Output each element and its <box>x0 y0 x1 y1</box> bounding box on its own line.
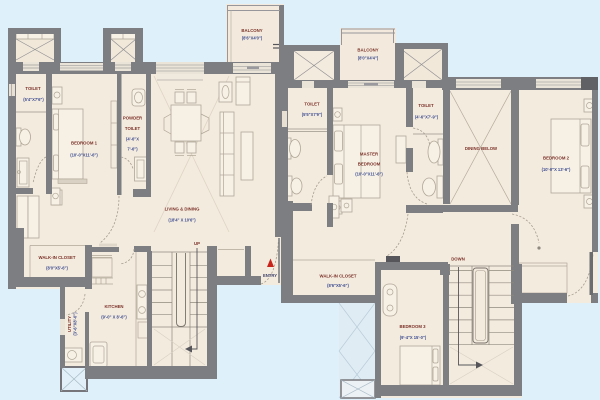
svg-text:BALCONY: BALCONY <box>241 28 262 33</box>
svg-text:TOILET: TOILET <box>25 86 41 91</box>
svg-text:POWDER: POWDER <box>123 116 143 121</box>
svg-text:BEDROOM 1: BEDROOM 1 <box>71 141 98 146</box>
svg-text:MASTER: MASTER <box>360 152 379 157</box>
svg-text:(8'0"X5'-6"): (8'0"X5'-6") <box>46 266 68 271</box>
svg-text:(8'0"X4'4"): (8'0"X4'4") <box>358 56 379 61</box>
svg-text:(8'6"X4'0"): (8'6"X4'0") <box>242 36 263 41</box>
svg-text:(9'-0" X 8'-6"): (9'-0" X 8'-6") <box>101 315 127 320</box>
svg-text:BALCONY: BALCONY <box>357 48 378 53</box>
svg-text:TOILET: TOILET <box>418 103 434 108</box>
svg-text:(5'5"X7'9"): (5'5"X7'9") <box>302 112 323 117</box>
svg-text:ENTRY: ENTRY <box>263 273 277 278</box>
svg-text:BEDROOM: BEDROOM <box>358 162 381 167</box>
svg-text:UP: UP <box>194 241 200 246</box>
svg-text:(8'6"X5'-6"): (8'6"X5'-6") <box>327 283 349 288</box>
svg-text:(4'-6"X: (4'-6"X <box>126 137 139 142</box>
svg-text:(10'-0"X 13'-6"): (10'-0"X 13'-6") <box>542 167 571 172</box>
svg-text:(5'4"X7'6"): (5'4"X7'6") <box>23 97 44 102</box>
svg-text:BEDROOM 2: BEDROOM 2 <box>543 156 570 161</box>
svg-text:(10'-0"X11'-6"): (10'-0"X11'-6") <box>70 153 98 158</box>
svg-text:7'-6"): 7'-6") <box>127 147 138 152</box>
svg-text:WALK-IN CLOSET: WALK-IN CLOSET <box>320 274 357 279</box>
svg-text:(9'-4"X 15'-0"): (9'-4"X 15'-0") <box>400 335 427 340</box>
svg-text:TOILET: TOILET <box>125 126 141 131</box>
svg-text:(4'-6"X7'-9"): (4'-6"X7'-9") <box>415 115 439 120</box>
svg-text:(10'-0"X11'-6"): (10'-0"X11'-6") <box>355 172 383 177</box>
svg-text:(18'4" X 10'6"): (18'4" X 10'6") <box>168 218 196 223</box>
svg-text:KITCHEN: KITCHEN <box>104 304 123 309</box>
svg-text:TOILET: TOILET <box>304 102 320 107</box>
svg-text:(3'-6"X8'-0"): (3'-6"X8'-0") <box>73 312 78 336</box>
svg-text:WALK-IN CLOSET: WALK-IN CLOSET <box>39 255 76 260</box>
svg-text:BEDROOM 3: BEDROOM 3 <box>399 324 426 329</box>
svg-text:DOWN: DOWN <box>451 257 465 262</box>
svg-text:LIVING & DINING: LIVING & DINING <box>165 207 201 212</box>
svg-text:DINING BELOW: DINING BELOW <box>465 146 498 151</box>
svg-text:UTILITY: UTILITY <box>67 316 72 332</box>
